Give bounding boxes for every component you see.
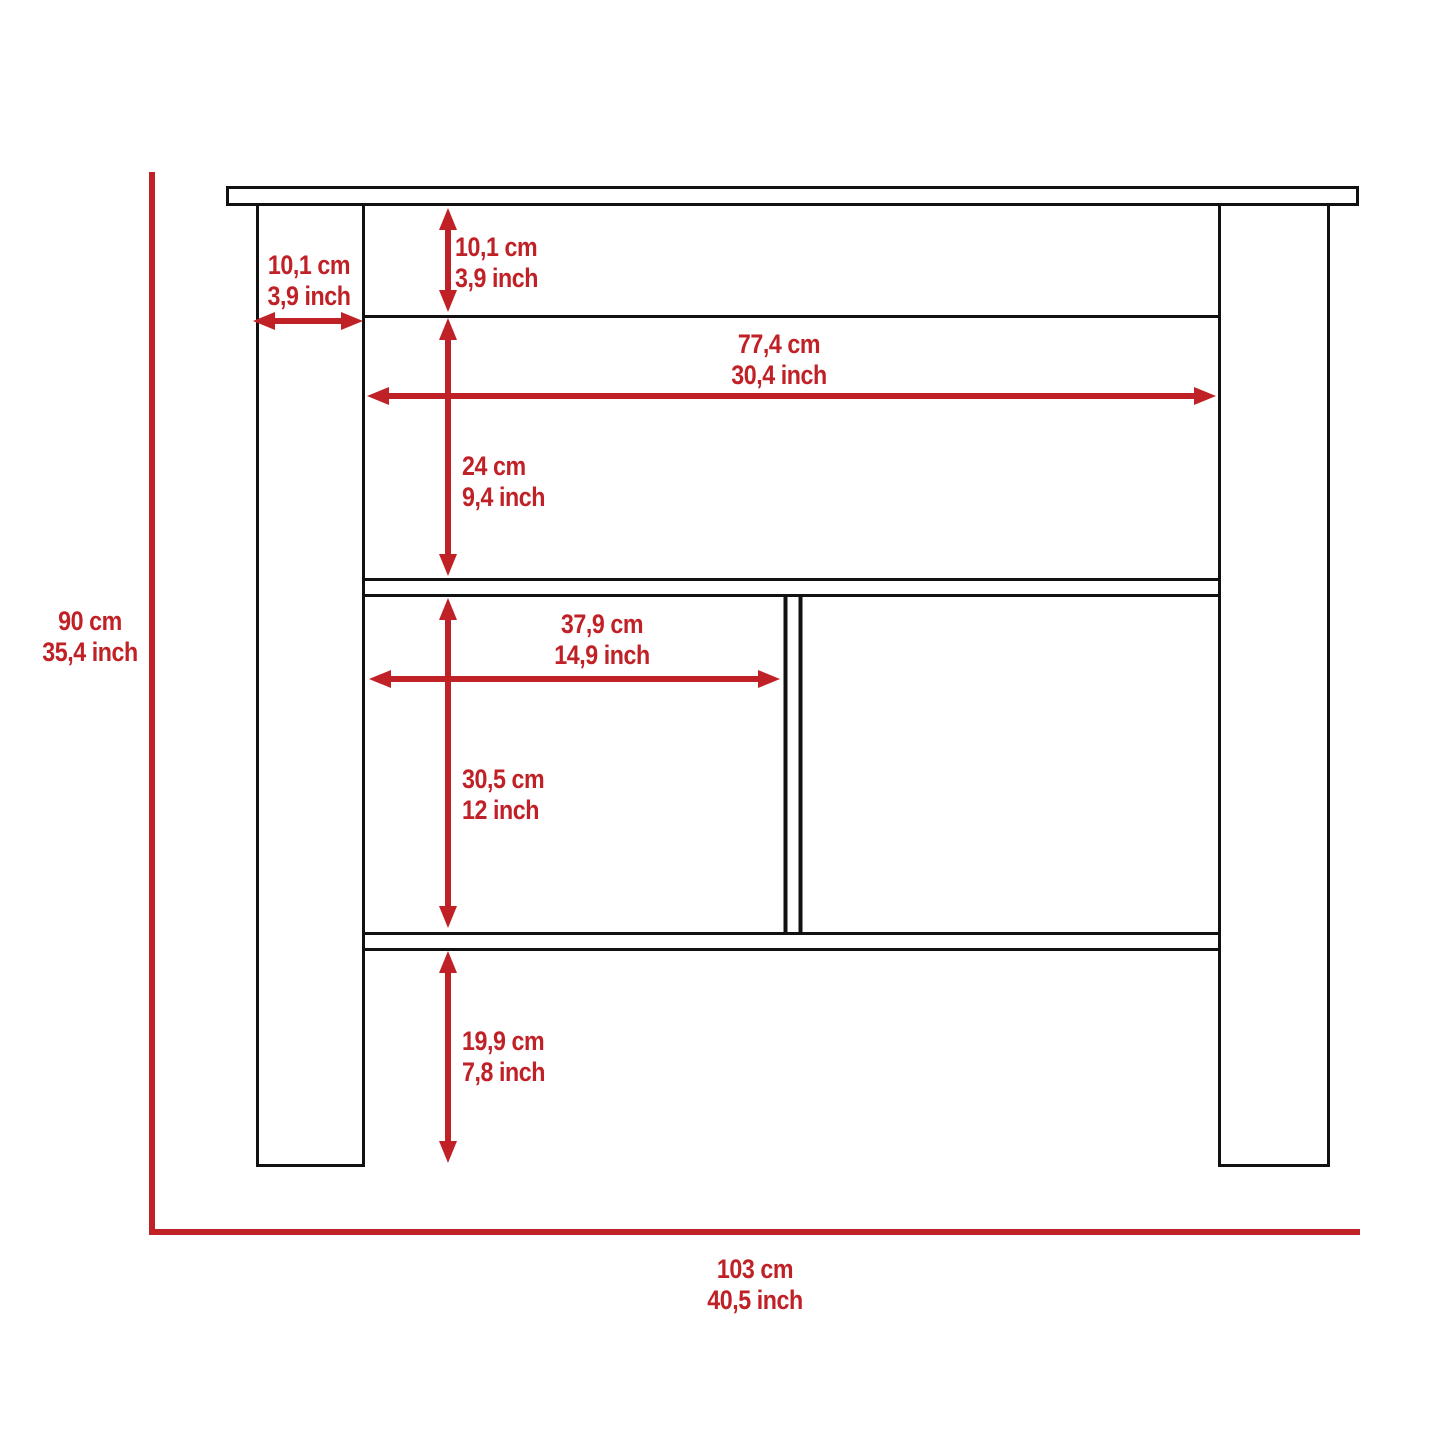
leg-width-inch: 3,9 inch: [223, 281, 395, 312]
compartment-height-label: 30,5 cm 12 inch: [462, 764, 544, 826]
inner-width-cm: 77,4 cm: [693, 329, 865, 360]
compartment-height-arrowhead-bottom: [439, 906, 457, 928]
diagram-drawing: [0, 0, 1445, 1445]
compartment-height-arrow: [439, 598, 457, 928]
open-shelf-height-arrow: [439, 318, 457, 576]
bottom-clearance-arrowhead-top: [439, 951, 457, 973]
overall-height-inch: 35,4 inch: [4, 637, 176, 668]
bottom-clearance-arrowhead-bottom: [439, 1141, 457, 1163]
bottom-clearance-arrow: [439, 951, 457, 1163]
compartment-width-arrowhead-right: [758, 670, 780, 688]
compartment-height-inch: 12 inch: [462, 795, 544, 826]
open-shelf-height-cm: 24 cm: [462, 451, 545, 482]
overall-width-cm: 103 cm: [669, 1254, 841, 1285]
left-leg: [258, 205, 364, 1166]
overall-width-inch: 40,5 inch: [669, 1285, 841, 1316]
leg-width-label: 10,1 cm 3,9 inch: [223, 250, 395, 312]
right-leg: [1220, 205, 1329, 1166]
inner-width-arrowhead-right: [1194, 387, 1216, 405]
dimension-diagram: 10,1 cm 3,9 inch 10,1 cm 3,9 inch 77,4 c…: [0, 0, 1445, 1445]
apron-height-inch: 3,9 inch: [455, 263, 538, 294]
open-shelf-height-arrowhead-bottom: [439, 554, 457, 576]
leg-width-arrow: [253, 312, 363, 330]
apron-height-cm: 10,1 cm: [455, 232, 538, 263]
compartment-height-cm: 30,5 cm: [462, 764, 544, 795]
compartment-width-label: 37,9 cm 14,9 inch: [516, 609, 688, 671]
compartment-width-cm: 37,9 cm: [516, 609, 688, 640]
compartment-width-arrow: [369, 670, 780, 688]
overall-width-label: 103 cm 40,5 inch: [669, 1254, 841, 1316]
bottom-clearance-label: 19,9 cm 7,8 inch: [462, 1026, 545, 1088]
bottom-clearance-inch: 7,8 inch: [462, 1057, 545, 1088]
bottom-clearance-cm: 19,9 cm: [462, 1026, 545, 1057]
inner-width-inch: 30,4 inch: [693, 360, 865, 391]
compartment-height-arrowhead-top: [439, 598, 457, 620]
compartment-width-inch: 14,9 inch: [516, 640, 688, 671]
open-shelf-height-label: 24 cm 9,4 inch: [462, 451, 545, 513]
tabletop: [228, 188, 1358, 205]
inner-width-label: 77,4 cm 30,4 inch: [693, 329, 865, 391]
open-shelf-height-arrowhead-top: [439, 318, 457, 340]
leg-width-arrowhead-right: [341, 312, 363, 330]
compartment-width-arrowhead-left: [369, 670, 391, 688]
apron-height-label: 10,1 cm 3,9 inch: [455, 232, 538, 294]
overall-height-cm: 90 cm: [4, 606, 176, 637]
inner-width-arrowhead-left: [367, 387, 389, 405]
overall-height-label: 90 cm 35,4 inch: [4, 606, 176, 668]
apron-height-arrowhead-top: [439, 208, 457, 230]
leg-width-cm: 10,1 cm: [223, 250, 395, 281]
open-shelf-height-inch: 9,4 inch: [462, 482, 545, 513]
